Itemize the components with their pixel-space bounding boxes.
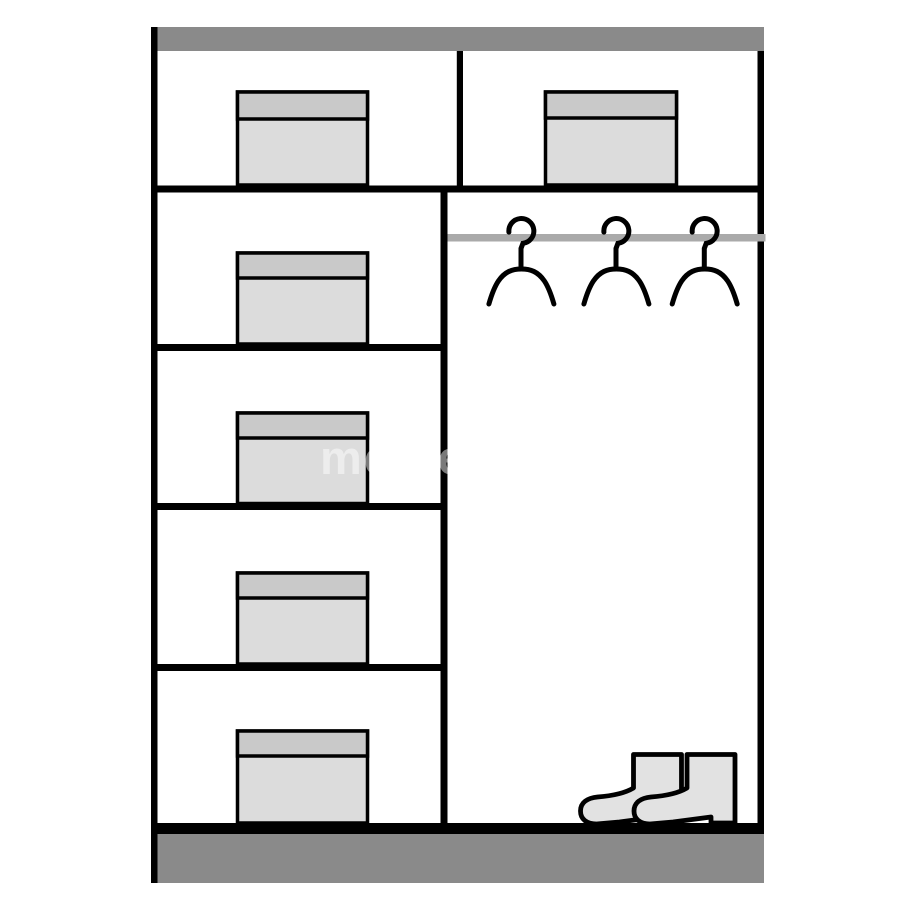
svg-text:meble: meble bbox=[320, 431, 466, 484]
